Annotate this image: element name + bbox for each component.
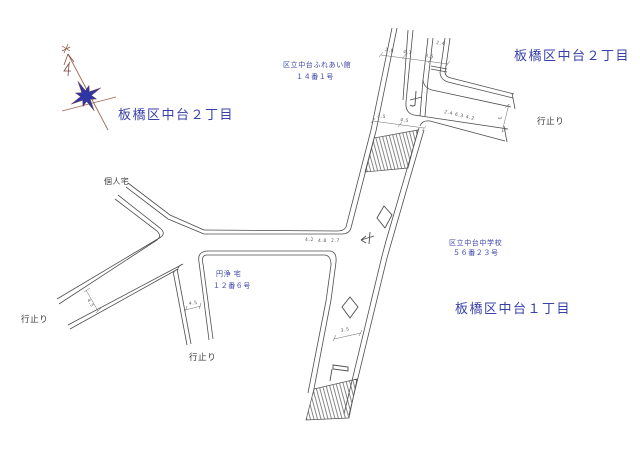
enjo-address-label: １２番６号 — [213, 283, 251, 290]
arrow-marking — [361, 232, 374, 244]
district-label-nw: 板橋区中台２丁目 — [118, 108, 234, 121]
east-branch-lower — [420, 121, 507, 142]
dim-label: 2.0 — [385, 47, 394, 54]
steps-hatch-top — [365, 130, 418, 172]
private-house-label: 個人宅 — [104, 178, 129, 186]
dim-label: 4.5 — [400, 117, 409, 124]
diamond-marking-upper — [377, 206, 392, 228]
dim-label: 3.5 — [425, 53, 434, 60]
dead-end-label-sw: 行止り — [21, 315, 48, 324]
dead-end-cap-upper — [512, 93, 515, 109]
dim-label: 3.5 — [340, 327, 349, 334]
hall-address-label: １４番１号 — [296, 74, 334, 81]
main-road-right-edge — [344, 30, 508, 415]
dim-label: 3 — [496, 116, 503, 120]
dead-end-label-s: 行止り — [189, 353, 216, 362]
step-tick — [431, 66, 447, 72]
compass-star — [71, 81, 101, 111]
dim-label: 2.4 — [436, 40, 445, 47]
dim-label: 2.7 — [331, 238, 340, 244]
district-label-ne: 板橋区中台２丁目 — [514, 49, 630, 62]
district-label-se: 板橋区中台１丁目 — [455, 302, 571, 315]
north-stub-road — [423, 38, 514, 107]
school-address-label: ５６番２３号 — [453, 250, 499, 257]
main-road-left-edge — [204, 28, 397, 234]
flag-marking — [330, 365, 348, 381]
dim-label: 3.5 — [377, 113, 386, 120]
school-name-label: 区立中台中学校 — [449, 240, 502, 247]
diamond-marking-lower — [342, 297, 358, 318]
dim-label: 4.5 — [188, 300, 197, 307]
cross-marking — [410, 91, 422, 106]
dimension-lines — [84, 52, 509, 341]
east-branch-upper — [512, 93, 515, 109]
road-network — [57, 28, 515, 415]
dimension-labels: 2.0 4.1 3.5 2.4 3.5 4.5 4.2 4.0 2.7 2.4 … — [85, 40, 502, 334]
hall-name-label: 区立中台ふれあい館 — [283, 62, 351, 69]
southwest-and-south-road — [68, 264, 191, 345]
dim-label: 4.1 — [403, 49, 412, 56]
enjo-house-label: 円浄 宅 — [216, 271, 241, 278]
dim-label: 4.2 — [305, 237, 314, 243]
north-mark — [62, 44, 70, 53]
dim-label: 4.0 — [318, 238, 327, 244]
map-canvas: 2.0 4.1 3.5 2.4 3.5 4.5 4.2 4.0 2.7 2.4 … — [0, 0, 640, 458]
steps-hatch-bottom — [306, 379, 357, 420]
northwest-road — [57, 183, 204, 304]
dead-end-label-ne: 行止り — [537, 117, 564, 126]
compass-fletch-mark — [64, 62, 71, 76]
compass-rose-icon — [62, 44, 116, 130]
dim-label: 4.5 — [85, 298, 95, 308]
